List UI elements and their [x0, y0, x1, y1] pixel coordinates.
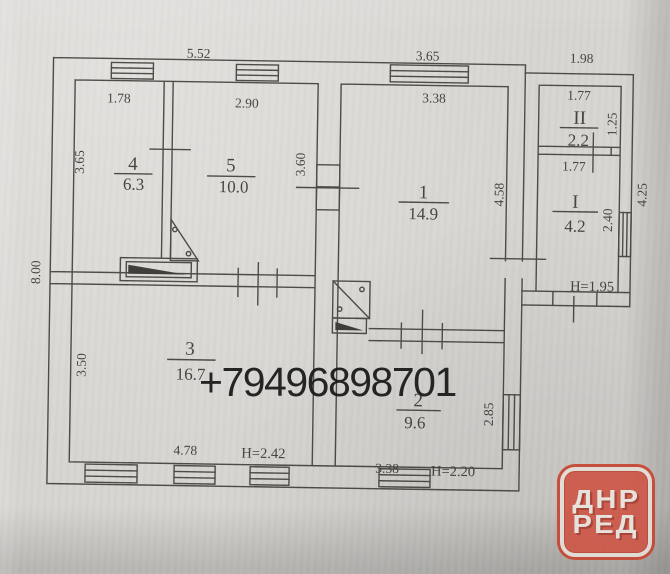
dim-roomI-height: 2.40: [600, 208, 615, 232]
dim-room3-height: 3.50: [74, 353, 89, 377]
window: [502, 395, 520, 450]
dim-room5-height: 3.60: [293, 152, 308, 176]
room-I-area: 4.2: [564, 217, 586, 236]
agency-logo: ДНР РЕД: [560, 467, 652, 557]
window: [390, 65, 468, 83]
dim-room5-width: 2.90: [235, 95, 259, 110]
dim-room1-height: 4.58: [491, 182, 506, 206]
window: [619, 212, 632, 256]
dim-roomI-width: 1.77: [562, 159, 586, 174]
ceiling-height-room3: H=2.42: [241, 446, 285, 463]
dim-room2-height: 2.85: [481, 402, 496, 426]
room-1-number: 1: [419, 182, 429, 203]
dim-room4-height: 3.65: [72, 150, 87, 174]
dim-annex-height: 4.25: [634, 183, 649, 207]
dim-room4-width: 1.78: [107, 90, 131, 105]
window: [250, 467, 289, 486]
window: [174, 465, 215, 484]
dim-top-right: 1.98: [570, 51, 594, 66]
dim-room3-width: 4.78: [173, 442, 197, 457]
room-1-area: 14.9: [408, 204, 438, 223]
stove-symbol: [120, 219, 199, 282]
dim-top-left: 5.52: [187, 46, 211, 61]
ceiling-height-annex: H=1.95: [570, 279, 614, 296]
dim-roomII-width: 1.77: [567, 88, 591, 103]
dim-left-total: 8.00: [28, 260, 43, 284]
room-3-number: 3: [185, 339, 195, 360]
room-5-area: 10.0: [219, 177, 249, 196]
ceiling-height-room2: H=2.20: [431, 464, 475, 481]
dim-room1-width: 3.38: [422, 90, 446, 105]
room-4-area: 6.3: [123, 175, 145, 194]
dim-top-mid: 3.65: [416, 48, 440, 63]
window: [111, 62, 153, 79]
room-II-area: 2.2: [568, 131, 590, 150]
dim-room2-width: 3.38: [375, 461, 399, 476]
dim-roomII-height: 1.25: [604, 112, 619, 136]
room-I-number: I: [572, 192, 579, 213]
room-5-number: 5: [226, 155, 236, 176]
room-2-area: 9.6: [404, 413, 426, 432]
main-building-walls: [47, 58, 526, 491]
room-4-number: 4: [128, 154, 138, 175]
window: [236, 64, 278, 81]
phone-watermark: +79496898701: [199, 359, 456, 406]
room-II-number: II: [573, 108, 586, 129]
logo-line-2: РЕД: [573, 512, 639, 537]
dimension-ticks: [147, 126, 593, 356]
floor-plan-photo: 4 6.3 5 10.0 3 16.7 1 14.9 2 9.6 II 2.2 …: [0, 0, 670, 574]
window: [85, 464, 137, 483]
